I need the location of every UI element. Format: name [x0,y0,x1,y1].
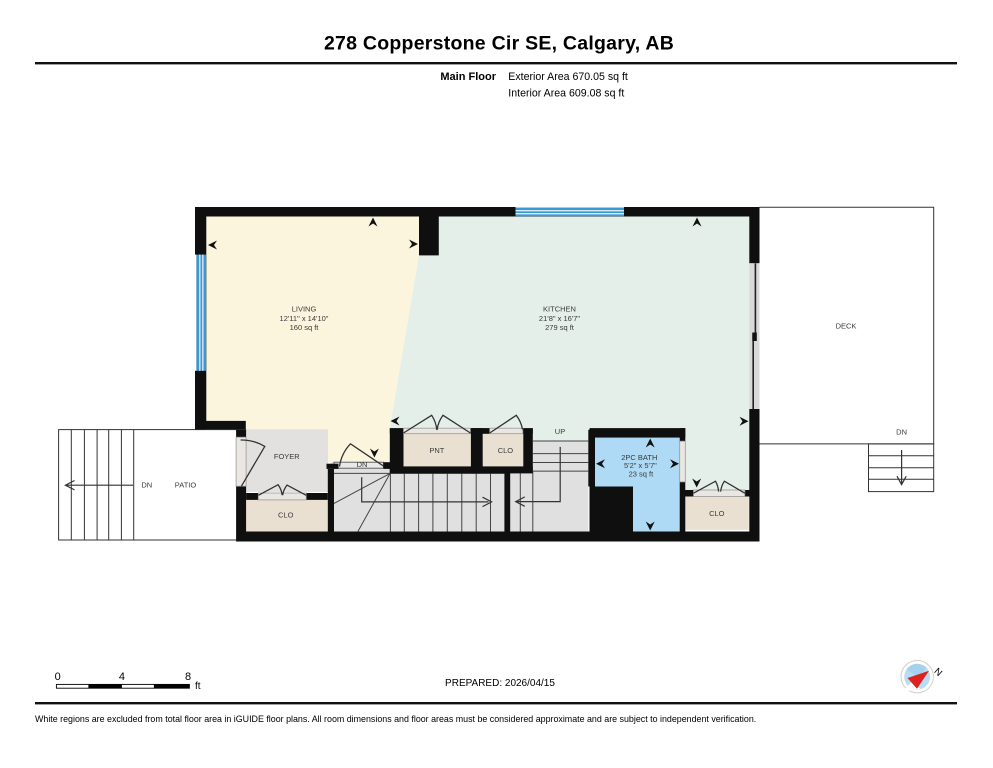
svg-text:PREPARED: 2026/04/15: PREPARED: 2026/04/15 [445,678,555,689]
svg-text:FOYER: FOYER [274,452,300,461]
svg-text:279 sq ft: 279 sq ft [545,323,575,332]
svg-text:160 sq ft: 160 sq ft [290,323,320,332]
svg-text:0: 0 [55,671,61,683]
svg-text:8: 8 [185,671,191,683]
svg-text:CLO: CLO [709,509,725,518]
svg-text:Main Floor: Main Floor [440,71,496,83]
svg-text:Interior Area 609.08 sq ft: Interior Area 609.08 sq ft [508,88,624,100]
svg-text:PATIO: PATIO [175,481,197,490]
svg-text:PNT: PNT [429,446,444,455]
svg-text:White regions are excluded fro: White regions are excluded from total fl… [35,714,756,724]
svg-text:278 Copperstone Cir SE, Calgar: 278 Copperstone Cir SE, Calgary, AB [324,33,674,55]
svg-text:KITCHEN: KITCHEN [543,305,576,314]
svg-text:LIVING: LIVING [292,305,317,314]
svg-text:23 sq ft: 23 sq ft [629,469,655,478]
svg-text:CLO: CLO [498,446,514,455]
svg-text:Exterior Area 670.05 sq ft: Exterior Area 670.05 sq ft [508,71,628,83]
svg-text:12'11" x 14'10": 12'11" x 14'10" [280,314,329,323]
svg-text:DN: DN [896,427,907,436]
svg-text:4: 4 [119,671,125,683]
svg-text:DN: DN [141,480,152,489]
svg-text:UP: UP [555,427,565,436]
svg-text:CLO: CLO [278,510,294,519]
svg-text:DN: DN [357,460,368,469]
svg-text:DECK: DECK [836,321,857,330]
svg-text:21'8" x 16'7": 21'8" x 16'7" [539,314,580,323]
svg-text:ft: ft [195,681,201,692]
